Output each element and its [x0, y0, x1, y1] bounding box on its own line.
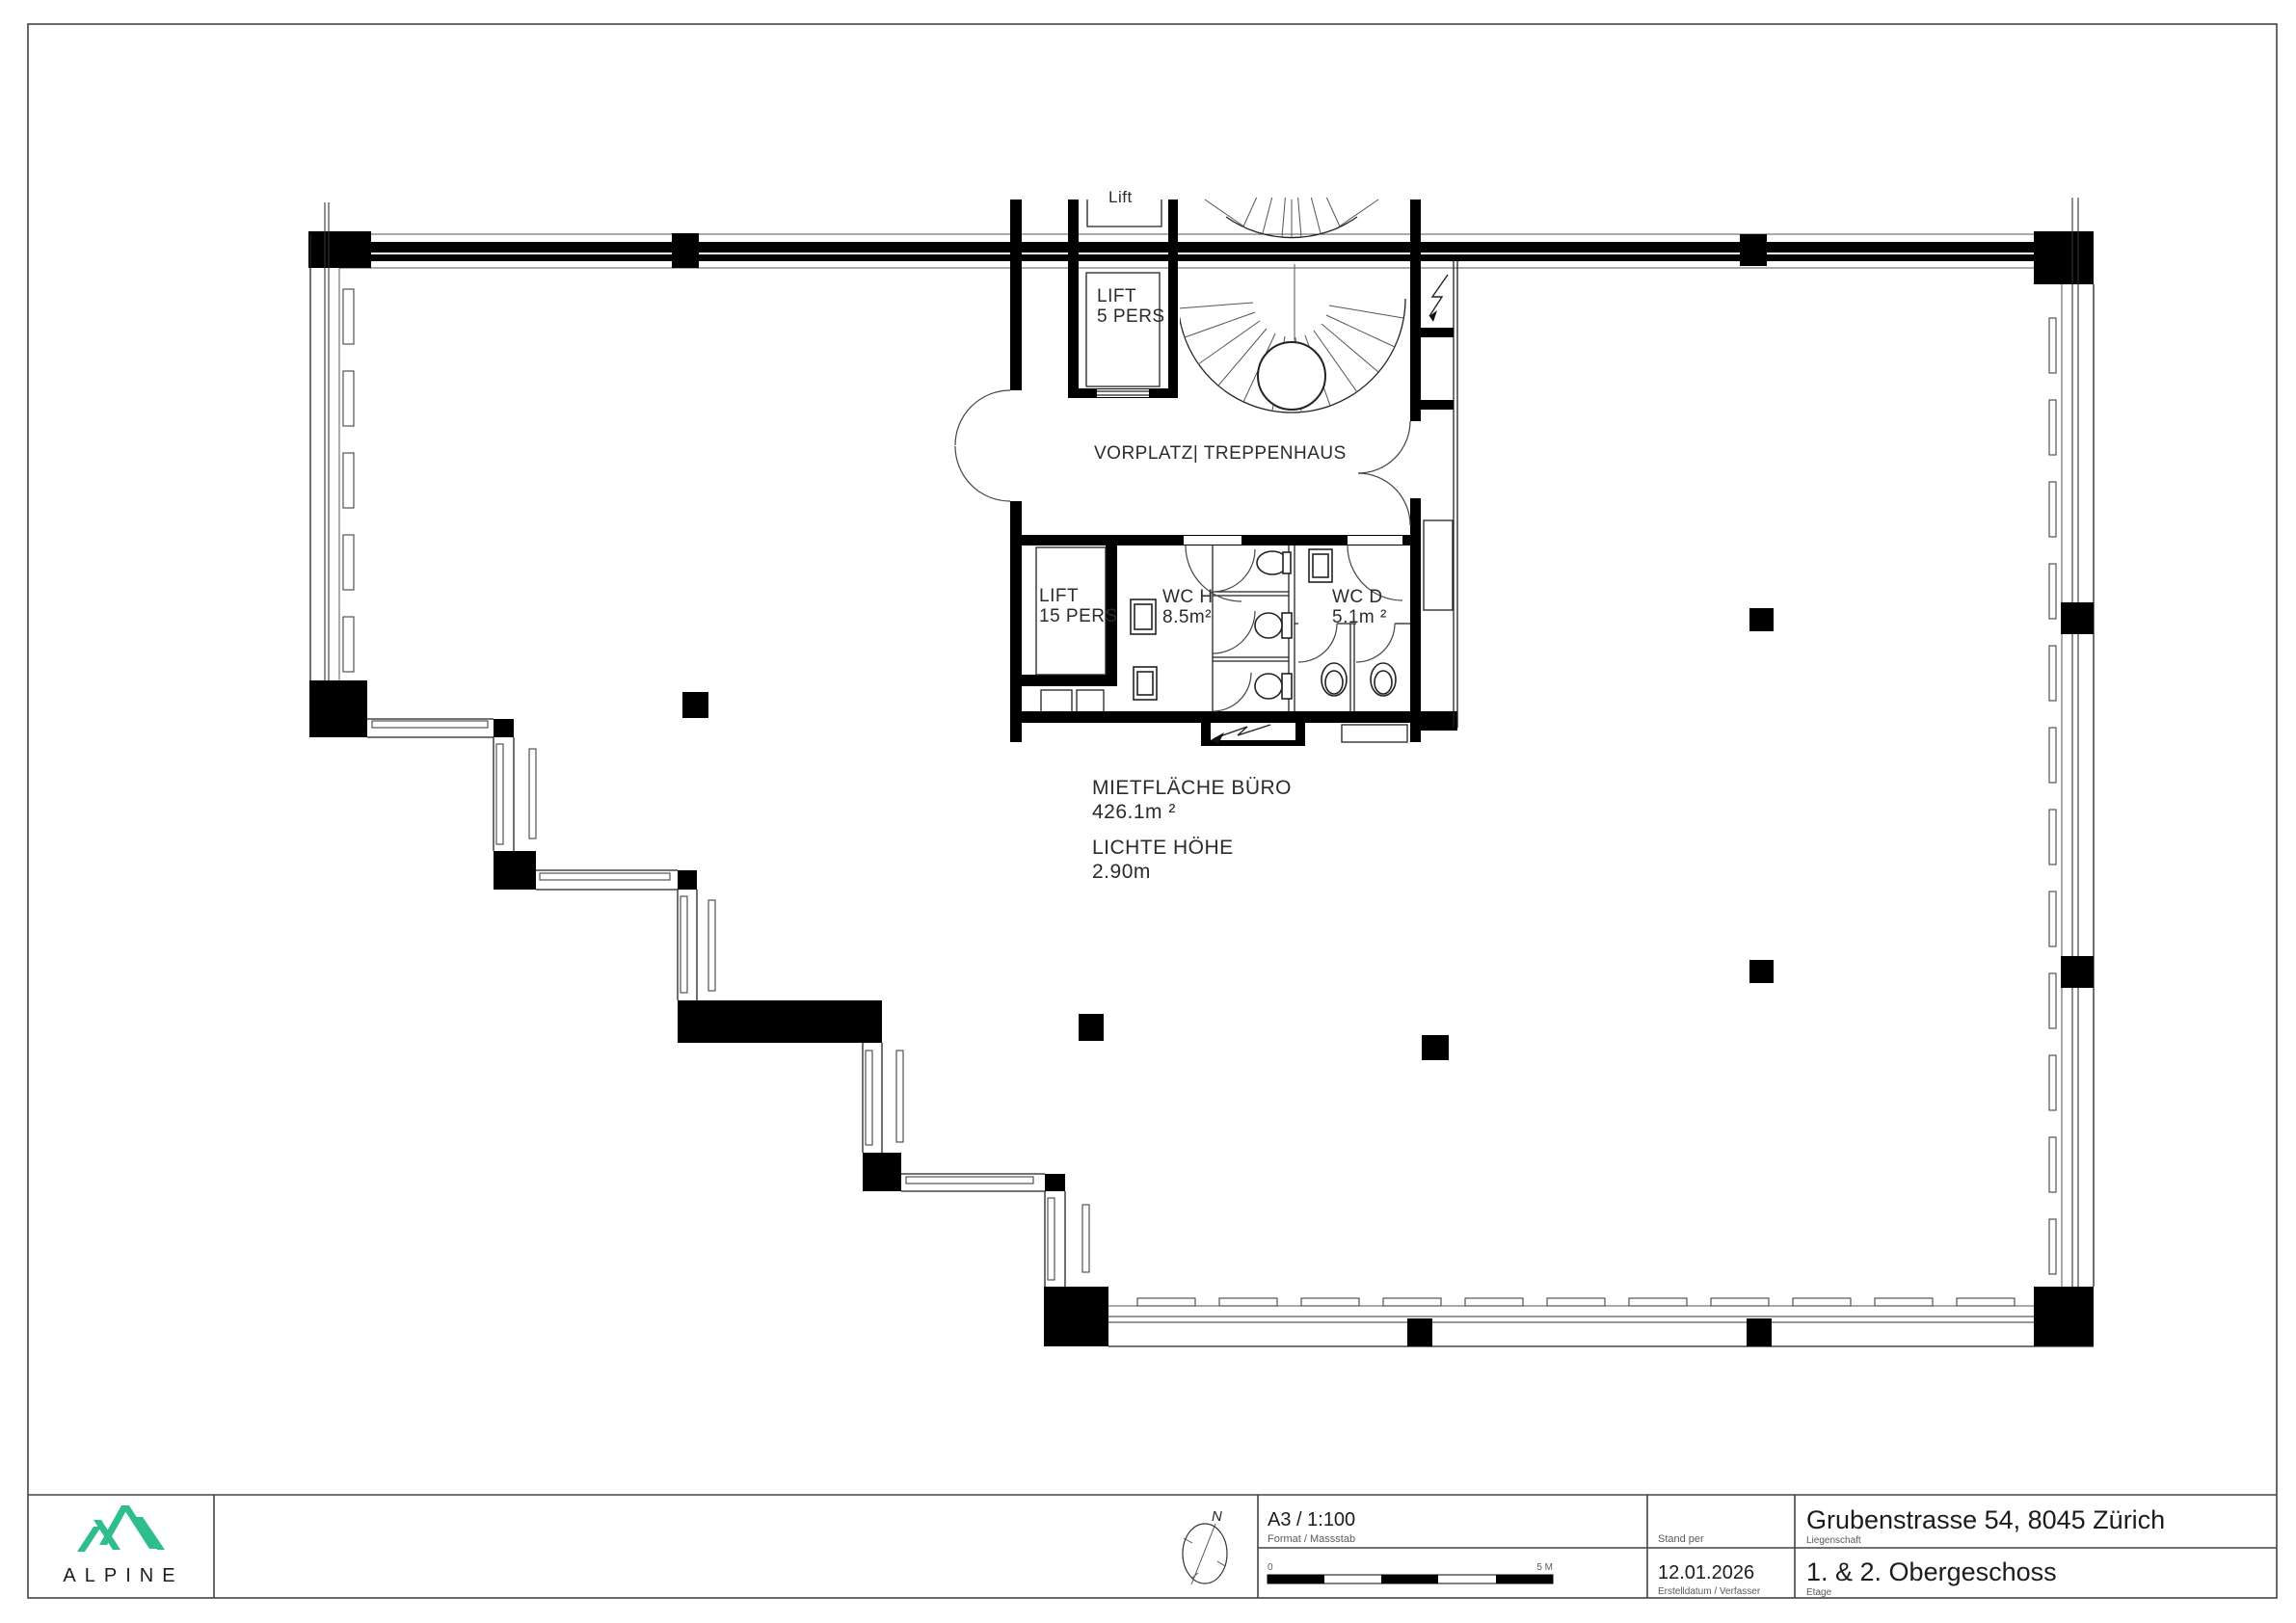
toilet: [1255, 674, 1282, 699]
stepped-facade: [367, 719, 1089, 1287]
floor-plan-svg: Lift LIFT 5 PERS VORPLATZ| TREPPENHAUS L…: [0, 0, 2296, 1623]
lift5-label: LIFT: [1097, 286, 1136, 306]
property-label: Liegenschaft: [1806, 1535, 1861, 1546]
floor-value: 1. & 2. Obergeschoss: [1806, 1557, 2057, 1586]
svg-text:15 PERS: 15 PERS: [1039, 606, 1118, 626]
wch-label: WC H: [1162, 587, 1214, 607]
height-title: LICHTE HÖHE: [1092, 837, 1234, 859]
compass-n-label: N: [1212, 1508, 1222, 1525]
doors: [955, 390, 1410, 711]
lift15-label: LIFT: [1039, 586, 1079, 606]
floor-label: Etage: [1806, 1587, 1832, 1598]
format-label: Format / Massstab: [1268, 1533, 1355, 1545]
date-sublabel: Erstelldatum / Verfasser: [1658, 1586, 1761, 1597]
toilet: [1255, 613, 1282, 638]
column: [1079, 1014, 1104, 1041]
corner-column-left-bottom: [309, 680, 367, 737]
date-label: Stand per: [1658, 1533, 1704, 1545]
vorplatz-label: VORPLATZ| TREPPENHAUS: [1094, 443, 1347, 464]
scale-bar: 0 5 M: [1268, 1562, 1553, 1583]
svg-text:8.5m²: 8.5m²: [1162, 607, 1212, 627]
alpine-logo-mountain-icon: [77, 1505, 165, 1552]
north-compass-icon: N: [1183, 1508, 1227, 1584]
format-value: A3 / 1:100: [1268, 1509, 1355, 1530]
svg-text:5.1m ²: 5.1m ²: [1332, 607, 1387, 627]
column: [672, 233, 699, 268]
svg-text:5 PERS: 5 PERS: [1097, 306, 1165, 327]
scale-zero: 0: [1268, 1562, 1273, 1573]
exterior-walls: [308, 198, 2094, 1346]
area-value: 426.1m ²: [1092, 801, 1176, 823]
alpine-logo-text: ALPINE: [63, 1565, 183, 1586]
spiral-stair: [1178, 264, 1405, 412]
column: [1747, 1318, 1772, 1346]
column: [1749, 960, 1774, 983]
height-value: 2.90m: [1092, 861, 1151, 883]
lightning-icon: [1429, 275, 1448, 322]
alpine-logo: ALPINE: [63, 1505, 183, 1586]
spiral-stair-above: [1205, 184, 1378, 238]
corner-column-bottom-right: [2034, 1287, 2094, 1346]
corner-column-step-bottom: [1044, 1287, 1108, 1346]
corner-column-top-left: [308, 231, 371, 268]
wcd-label: WC D: [1332, 587, 1383, 607]
column: [2061, 956, 2094, 988]
column: [1749, 608, 1774, 631]
date-value: 12.01.2026: [1658, 1562, 1754, 1583]
title-block: ALPINE N A3 / 1:100 Format / Massstab 0 …: [28, 1495, 2277, 1598]
column: [2061, 602, 2094, 634]
column: [1407, 1318, 1432, 1346]
lift-top-label: Lift: [1108, 188, 1133, 206]
area-title: MIETFLÄCHE BÜRO: [1092, 777, 1292, 799]
corner-column-top-right: [2034, 231, 2094, 284]
scale-max: 5 M: [1536, 1562, 1553, 1573]
column: [682, 692, 708, 718]
column: [1740, 234, 1767, 266]
property-value: Grubenstrasse 54, 8045 Zürich: [1806, 1505, 2165, 1534]
column: [1422, 1035, 1449, 1060]
drawing-sheet: Lift LIFT 5 PERS VORPLATZ| TREPPENHAUS L…: [0, 0, 2296, 1623]
